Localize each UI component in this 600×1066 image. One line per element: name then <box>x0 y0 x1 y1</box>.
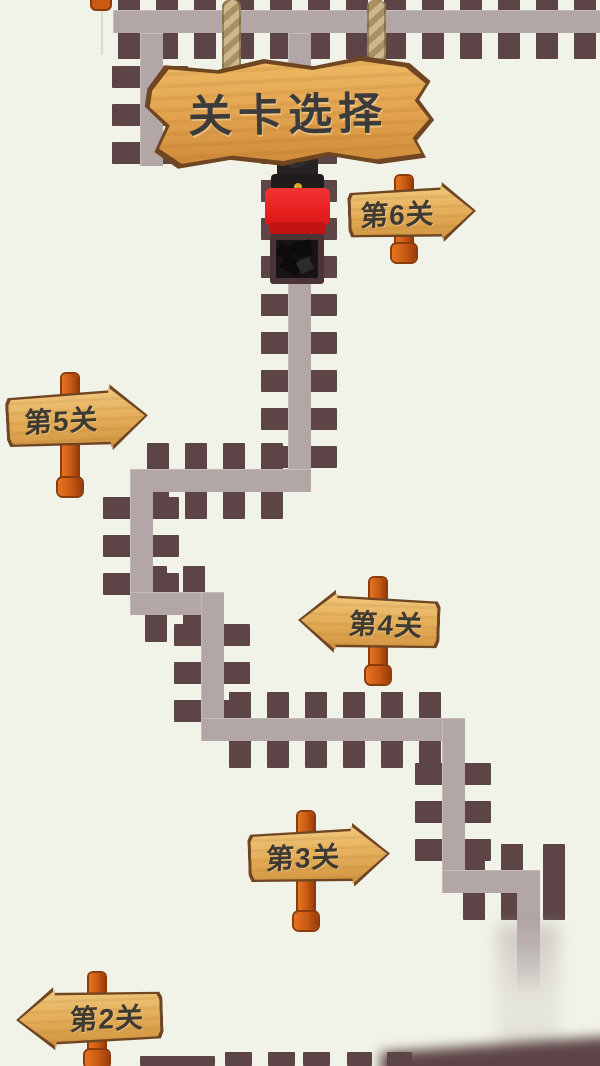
player-cart[interactable] <box>264 150 332 284</box>
cart-cab <box>265 188 330 226</box>
road-segment <box>130 469 311 492</box>
title-sign-label: 关卡选择 <box>141 51 435 170</box>
wire <box>101 9 103 55</box>
road-tie <box>225 1052 252 1066</box>
sign-label: 第2关 <box>56 984 158 1051</box>
road-tie <box>303 1052 330 1066</box>
sign-label: 第6关 <box>353 182 442 245</box>
cart-coal-bed <box>270 234 324 284</box>
bottom-road-shadow <box>380 1036 600 1066</box>
sign-post-foot <box>85 1050 109 1066</box>
sign-post-foot <box>366 666 390 684</box>
offscreen-sign-post <box>92 0 110 9</box>
road-segment <box>201 718 465 741</box>
level-sign-6[interactable]: 第6关 <box>348 170 476 262</box>
road-tie <box>347 1052 372 1066</box>
coal-chunk <box>293 239 314 258</box>
sign-board: 第3关 <box>247 822 391 891</box>
sign-board: 第6关 <box>347 181 477 245</box>
level-sign-5[interactable]: 第5关 <box>6 374 150 496</box>
level-select-screen: 关卡选择 第6关 第5关 <box>0 0 600 1066</box>
sign-board: 第2关 <box>15 983 164 1051</box>
road-tie <box>543 844 565 920</box>
sign-label: 第5关 <box>13 384 111 455</box>
sign-label: 第4关 <box>334 590 437 656</box>
sign-label: 第3关 <box>254 823 353 890</box>
sign-board: 第5关 <box>4 382 149 455</box>
road-tie <box>268 1052 295 1066</box>
level-sign-4[interactable]: 第4关 <box>298 578 440 684</box>
sign-post-foot <box>294 912 318 930</box>
title-sign: 关卡选择 <box>141 51 435 170</box>
road-segment <box>113 10 600 33</box>
sign-post-foot <box>392 244 416 262</box>
sign-post-foot <box>58 478 82 496</box>
road-segment <box>442 718 465 893</box>
sign-board: 第4关 <box>297 589 441 657</box>
level-sign-2[interactable]: 第2关 <box>16 973 164 1066</box>
level-sign-3[interactable]: 第3关 <box>248 812 390 930</box>
